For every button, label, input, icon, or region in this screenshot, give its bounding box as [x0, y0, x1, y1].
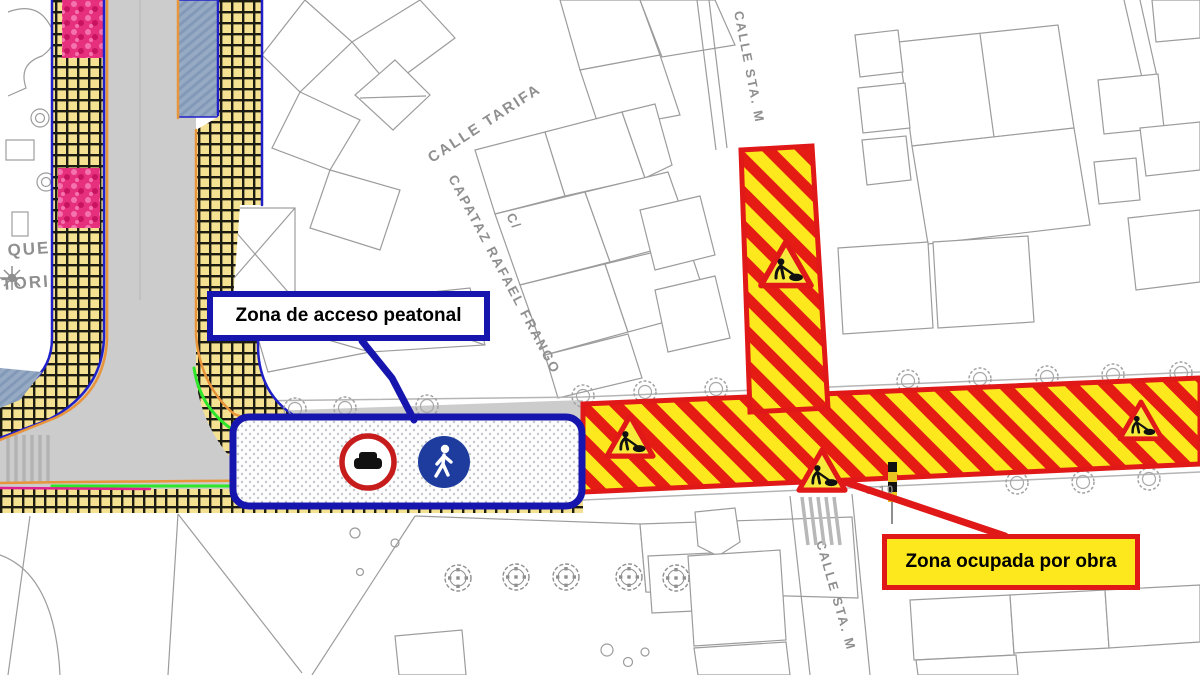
- pedestrian-zone-label: Zona de acceso peatonal: [207, 291, 490, 341]
- tree-icon: [445, 565, 471, 591]
- no-vehicles-sign-icon: [342, 436, 394, 488]
- tree-icon: [503, 564, 529, 590]
- site-plan-map: CALLE TARIFA C/ CAPATAZ RAFAEL FRANGO CA…: [0, 0, 1200, 675]
- tree-icon: [616, 564, 642, 590]
- construction-zone-label: Zona ocupada por obra: [882, 534, 1140, 590]
- tree-icon: [1138, 468, 1160, 490]
- pedestrian-zone-area: [233, 417, 582, 506]
- street-label-calle-sta-m-top: CALLE STA. M: [731, 10, 767, 125]
- tree-icon: [1006, 472, 1028, 494]
- construction-zone-label-text: Zona ocupada por obra: [905, 551, 1116, 573]
- street-label-parque-fragment-1: QUE: [7, 238, 51, 260]
- construction-label-connector: [845, 482, 1005, 536]
- pedestrian-zone-label-text: Zona de acceso peatonal: [236, 305, 462, 327]
- tree-icon: [1072, 471, 1094, 493]
- parking-area: [178, 0, 218, 117]
- flower-bed-top: [62, 0, 104, 58]
- pedestrian-zone: [233, 417, 582, 506]
- tree-icon: [553, 564, 579, 590]
- pedestrian-zone-sign-icon: [418, 436, 470, 488]
- flower-bed-mid: [58, 168, 100, 228]
